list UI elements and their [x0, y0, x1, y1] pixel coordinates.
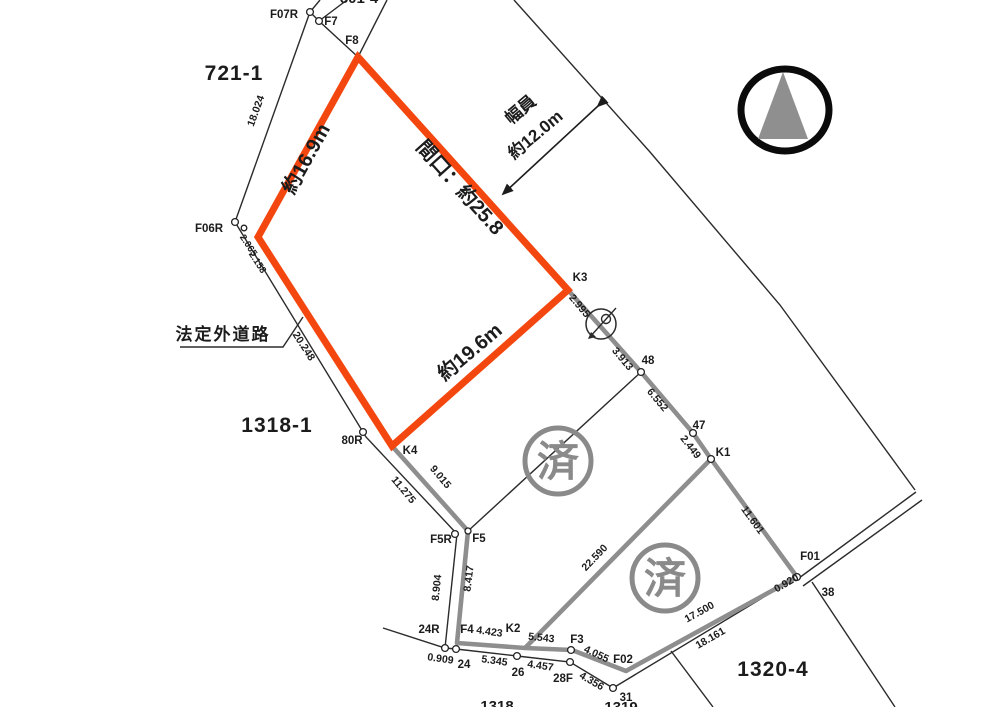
point-f5 — [465, 528, 471, 534]
point-f7 — [316, 18, 323, 25]
dim-frontage: 間口：約25.8 — [411, 135, 508, 239]
label-31: 31 — [620, 692, 633, 704]
parcel-721-1: 721-1 — [205, 62, 264, 85]
meas-8-904: 8.904 — [430, 574, 445, 602]
label-k2: K2 — [506, 623, 521, 635]
point-k1 — [708, 456, 715, 463]
label-f5: F5 — [472, 533, 486, 545]
point-24 — [453, 646, 460, 653]
meas-4-457: 4.457 — [527, 658, 555, 674]
boundary-line-f7-f8 — [319, 0, 358, 57]
meas-4-055: 4.055 — [582, 643, 611, 665]
north-compass — [741, 69, 829, 151]
point-26 — [514, 653, 521, 660]
label-f5r: F5R — [430, 534, 452, 546]
parcel-fragment-top: 801-4 — [340, 0, 379, 7]
label-k3: K3 — [573, 272, 588, 284]
stamp-label: 済 — [537, 438, 580, 485]
label-f3: F3 — [570, 634, 583, 646]
label-k1: K1 — [716, 447, 731, 459]
point-f5r — [452, 531, 459, 538]
cadastral-map-page: 済 済 721-1 1318-1 1320-4 801-4 1318 1319 … — [0, 0, 1000, 707]
done-stamp-2: 済 — [632, 545, 698, 611]
point-31 — [610, 685, 617, 692]
meas-5-345: 5.345 — [481, 653, 509, 669]
meas-8-417: 8.417 — [461, 565, 476, 593]
label-47: 47 — [693, 420, 706, 432]
point-28f — [567, 659, 574, 666]
point-f06r — [232, 219, 239, 226]
dim-side-left: 約16.9m — [277, 119, 335, 198]
label-f01: F01 — [800, 551, 820, 563]
label-f7: F7 — [324, 16, 337, 28]
meas-4-356: 4.356 — [577, 670, 606, 694]
label-f4: F4 — [460, 624, 474, 636]
label-k4: K4 — [403, 445, 418, 457]
point-24r — [442, 645, 449, 652]
road-name-label: 法定外道路 — [176, 324, 271, 344]
label-24r: 24R — [418, 624, 440, 636]
parcel-1320-4: 1320-4 — [737, 658, 808, 681]
meas-0-920: 0.920 — [772, 572, 801, 596]
meas-4-423: 4.423 — [476, 624, 504, 640]
survey-line-k1-k2 — [525, 459, 711, 648]
label-f06r: F06R — [195, 223, 224, 235]
boundary-line-f8-north — [358, 0, 387, 57]
point-48 — [638, 369, 645, 376]
label-f07r: F07R — [270, 9, 299, 21]
done-stamp-1: 済 — [525, 428, 591, 494]
meas-2-449: 2.449 — [678, 433, 704, 461]
meas-0-909: 0.909 — [427, 651, 455, 667]
road-edge-f01-upper — [799, 492, 916, 578]
label-80r: 80R — [341, 435, 363, 447]
label-38: 38 — [822, 587, 835, 599]
label-28f: 28F — [553, 673, 573, 685]
stamp-label: 済 — [644, 555, 687, 602]
road-edge-east — [514, 0, 915, 490]
label-f8: F8 — [345, 35, 359, 47]
parcel-1318-1: 1318-1 — [241, 414, 312, 437]
survey-map-canvas: 済 済 721-1 1318-1 1320-4 801-4 1318 1319 … — [0, 0, 1000, 707]
parcel-fragment-bottom-a: 1318 — [480, 698, 513, 707]
label-f02: F02 — [613, 654, 633, 666]
label-26: 26 — [512, 667, 525, 679]
measurement-labels: 18.024 2.065 2.158 20.248 11.275 9.015 8… — [237, 94, 801, 694]
meas-11-275: 11.275 — [389, 474, 419, 506]
boundary-line-south-branch — [671, 651, 713, 707]
point-f06r-b — [241, 225, 247, 231]
road-edge-f01-lower — [803, 500, 922, 586]
meas-11-601: 11.601 — [738, 504, 766, 537]
boundary-line-38-south — [812, 582, 895, 707]
meas-18-024: 18.024 — [245, 94, 267, 128]
point-f07r — [307, 9, 314, 16]
point-f3 — [568, 647, 575, 654]
label-48: 48 — [642, 355, 655, 367]
survey-line-k3-k1-f01 — [568, 290, 797, 577]
parcel-number-labels: 721-1 1318-1 1320-4 801-4 1318 1319 — [205, 0, 809, 707]
label-24: 24 — [458, 659, 471, 671]
meas-20-248: 20.248 — [290, 330, 318, 364]
boundary-line-f07r-f06r — [235, 0, 320, 222]
dim-road-width-label: 幅員 — [501, 91, 540, 128]
